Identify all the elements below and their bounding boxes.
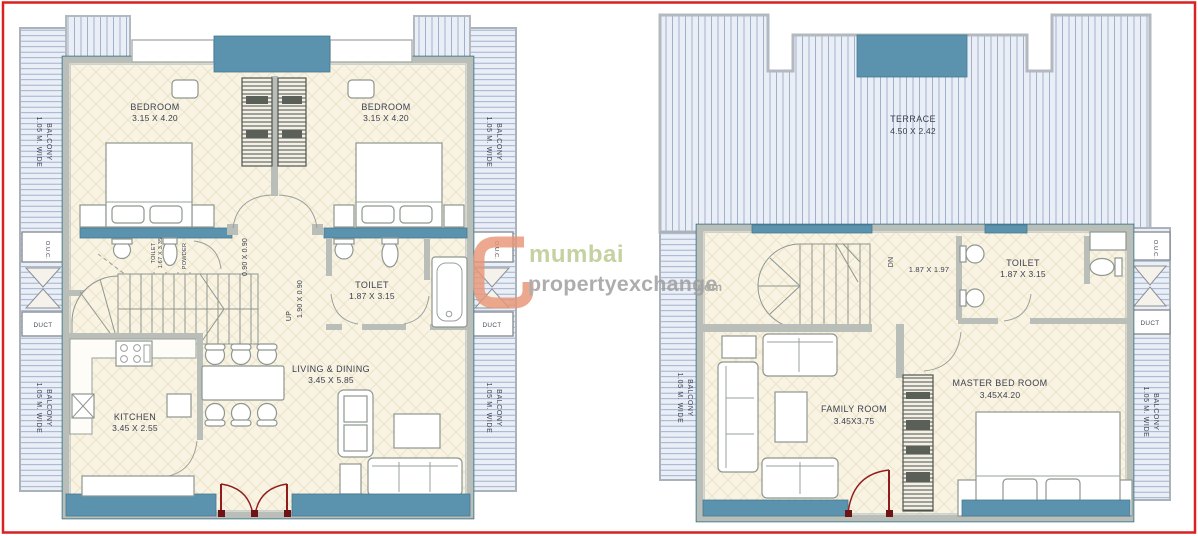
stair-dims-label: 1.87 X 1.97: [909, 265, 950, 274]
wall-mass: [80, 228, 232, 238]
svg-text:1.05 M. WIDE: 1.05 M. WIDE: [35, 383, 42, 434]
svg-text:1.05 M. WIDE: 1.05 M. WIDE: [35, 117, 42, 168]
coffee-table: [775, 392, 807, 442]
room-dims-toilet-f2: 1.87 X 3.15: [1000, 269, 1046, 279]
svg-text:1.67 X 3.35: 1.67 X 3.35: [158, 238, 164, 269]
svg-text:BALCONY: BALCONY: [1152, 393, 1159, 431]
ouc-label: O.U.C.: [44, 241, 50, 260]
upper-floor-plan: TERRACE 4.50 X 2.42 DN 1.8: [660, 15, 1170, 522]
wardrobe-icon-f2: [903, 375, 933, 511]
wall-mass: [292, 494, 470, 516]
room-dims-bedroom-left: 3.15 X 4.20: [132, 113, 178, 123]
wall-mass: [324, 228, 467, 238]
ouc-label: O.U.C.: [1152, 240, 1158, 259]
duct-label: DUCT: [483, 322, 502, 329]
svg-text:BALCONY: BALCONY: [45, 389, 52, 427]
svg-text:POWDER: POWDER: [182, 243, 188, 269]
wall-mass: [703, 500, 848, 516]
room-dims-kitchen: 3.45 X 2.55: [112, 423, 158, 433]
dining-chairs-top: [205, 344, 277, 365]
svg-text:UP: UP: [286, 311, 293, 321]
room-label-powder: POWDER: [182, 243, 188, 269]
window-band: [132, 40, 214, 62]
ouc-box: [1131, 232, 1170, 260]
coffee-table: [394, 414, 440, 448]
svg-text:DN: DN: [888, 257, 895, 268]
svg-text:BALCONY: BALCONY: [686, 379, 693, 417]
wall-mass: [985, 225, 1027, 233]
dining-chairs-bottom: [205, 404, 277, 427]
wall-mass: [962, 500, 1130, 516]
room-label-family: FAMILY ROOM: [821, 404, 887, 414]
passage-dims-label: 1.90 X 0.90: [297, 280, 304, 318]
room-label-bedroom-left: BEDROOM: [130, 102, 179, 112]
balcony-left-strip: [20, 28, 66, 491]
ouc-box: [22, 232, 64, 262]
chair-icon: [348, 80, 374, 98]
svg-text:BALCONY: BALCONY: [495, 123, 502, 161]
wardrobe-icons: [242, 76, 306, 168]
top-terrace-hatch-right: [414, 16, 470, 62]
svg-text:BALCONY: BALCONY: [45, 123, 52, 161]
console-table: [82, 476, 194, 496]
svg-text:TOILET: TOILET: [151, 242, 157, 263]
stairs-up-label: UP: [286, 311, 293, 321]
wall-mass: [857, 35, 967, 77]
lobby-dims-label: 0.90 X 0.90: [242, 238, 249, 276]
balcony-left-strip-f2: [660, 232, 700, 480]
room-label-terrace: TERRACE: [890, 114, 936, 124]
room-dims-living: 3.45 X 5.85: [308, 375, 354, 385]
room-dims-master: 3.45X4.20: [980, 390, 1021, 400]
svg-text:0.90 X 0.90: 0.90 X 0.90: [242, 238, 249, 276]
svg-text:O.U.C.: O.U.C.: [44, 241, 50, 260]
wall-mass: [66, 494, 216, 516]
floor-plan-drawing: BEDROOM 3.15 X 4.20 BEDROOM 3.15 X 4.20 …: [0, 0, 1198, 536]
stairs-dn-label: DN: [888, 257, 895, 268]
lower-floor-plan: BEDROOM 3.15 X 4.20 BEDROOM 3.15 X 4.20 …: [20, 16, 516, 519]
room-label-living: LIVING & DINING: [292, 364, 370, 374]
top-terrace-hatch-left: [66, 16, 130, 62]
svg-text:1.90 X 0.90: 1.90 X 0.90: [297, 280, 304, 318]
room-label-toilet-f2: TOILET: [1006, 258, 1040, 268]
room-dims-terrace: 4.50 X 2.42: [890, 126, 936, 136]
room-label-toilet-f1: TOILET: [355, 280, 389, 290]
balcony-right-strip-f2: [1130, 228, 1170, 500]
svg-text:1.05 M. WIDE: 1.05 M. WIDE: [485, 117, 492, 168]
wall-mass: [752, 225, 872, 233]
brand-name: mumbai: [529, 241, 624, 268]
window-band: [330, 40, 412, 62]
top-wall-mass: [214, 36, 330, 72]
dining-table: [202, 366, 284, 400]
svg-text:BALCONY: BALCONY: [495, 389, 502, 427]
svg-text:1.05 M. WIDE: 1.05 M. WIDE: [1142, 387, 1149, 438]
room-dims-family: 3.45X3.75: [834, 416, 875, 426]
brand-tld: .com: [694, 280, 722, 294]
room-dims-toilet-f1: 1.87 X 3.15: [349, 291, 395, 301]
dining-set: [202, 344, 284, 426]
svg-text:1.05 M. WIDE: 1.05 M. WIDE: [676, 373, 683, 424]
brand-name-2: propertyexchange: [528, 272, 718, 296]
svg-text:1.05 M. WIDE: 1.05 M. WIDE: [485, 383, 492, 434]
room-label-kitchen: KITCHEN: [114, 412, 156, 422]
room-label-master: MASTER BED ROOM: [952, 378, 1047, 388]
room-dims-bedroom-right: 3.15 X 4.20: [363, 113, 409, 123]
duct-label: DUCT: [1141, 320, 1160, 327]
floor-plan-canvas: BEDROOM 3.15 X 4.20 BEDROOM 3.15 X 4.20 …: [0, 0, 1198, 536]
svg-text:O.U.C.: O.U.C.: [1152, 240, 1158, 259]
room-label-bedroom-right: BEDROOM: [361, 102, 410, 112]
chair-icon: [172, 80, 198, 98]
duct-label: DUCT: [34, 322, 53, 329]
